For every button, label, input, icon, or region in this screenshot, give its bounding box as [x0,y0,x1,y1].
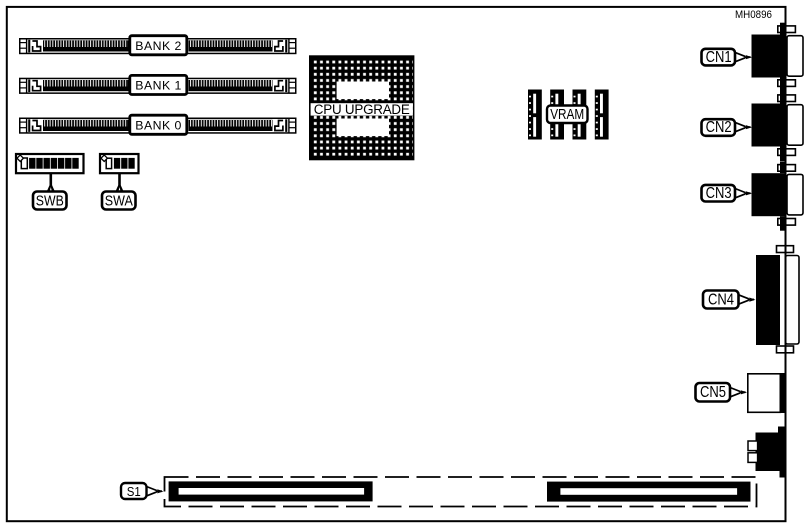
svg-text:CN4: CN4 [708,291,734,308]
svg-text:S1: S1 [127,484,141,499]
svg-text:BANK 2: BANK 2 [135,39,181,53]
svg-text:CN3: CN3 [706,185,732,202]
svg-text:CN1: CN1 [706,49,732,66]
svg-text:BANK 0: BANK 0 [135,118,181,132]
svg-text:VRAM: VRAM [550,107,584,123]
svg-text:CN2: CN2 [706,119,732,136]
svg-text:SWA: SWA [105,194,133,210]
svg-text:SWB: SWB [36,194,64,210]
svg-text:CN5: CN5 [700,384,726,401]
svg-text:MH0896: MH0896 [735,9,772,21]
svg-text:BANK 1: BANK 1 [135,79,181,93]
svg-text:CPU UPGRADE: CPU UPGRADE [314,102,410,117]
